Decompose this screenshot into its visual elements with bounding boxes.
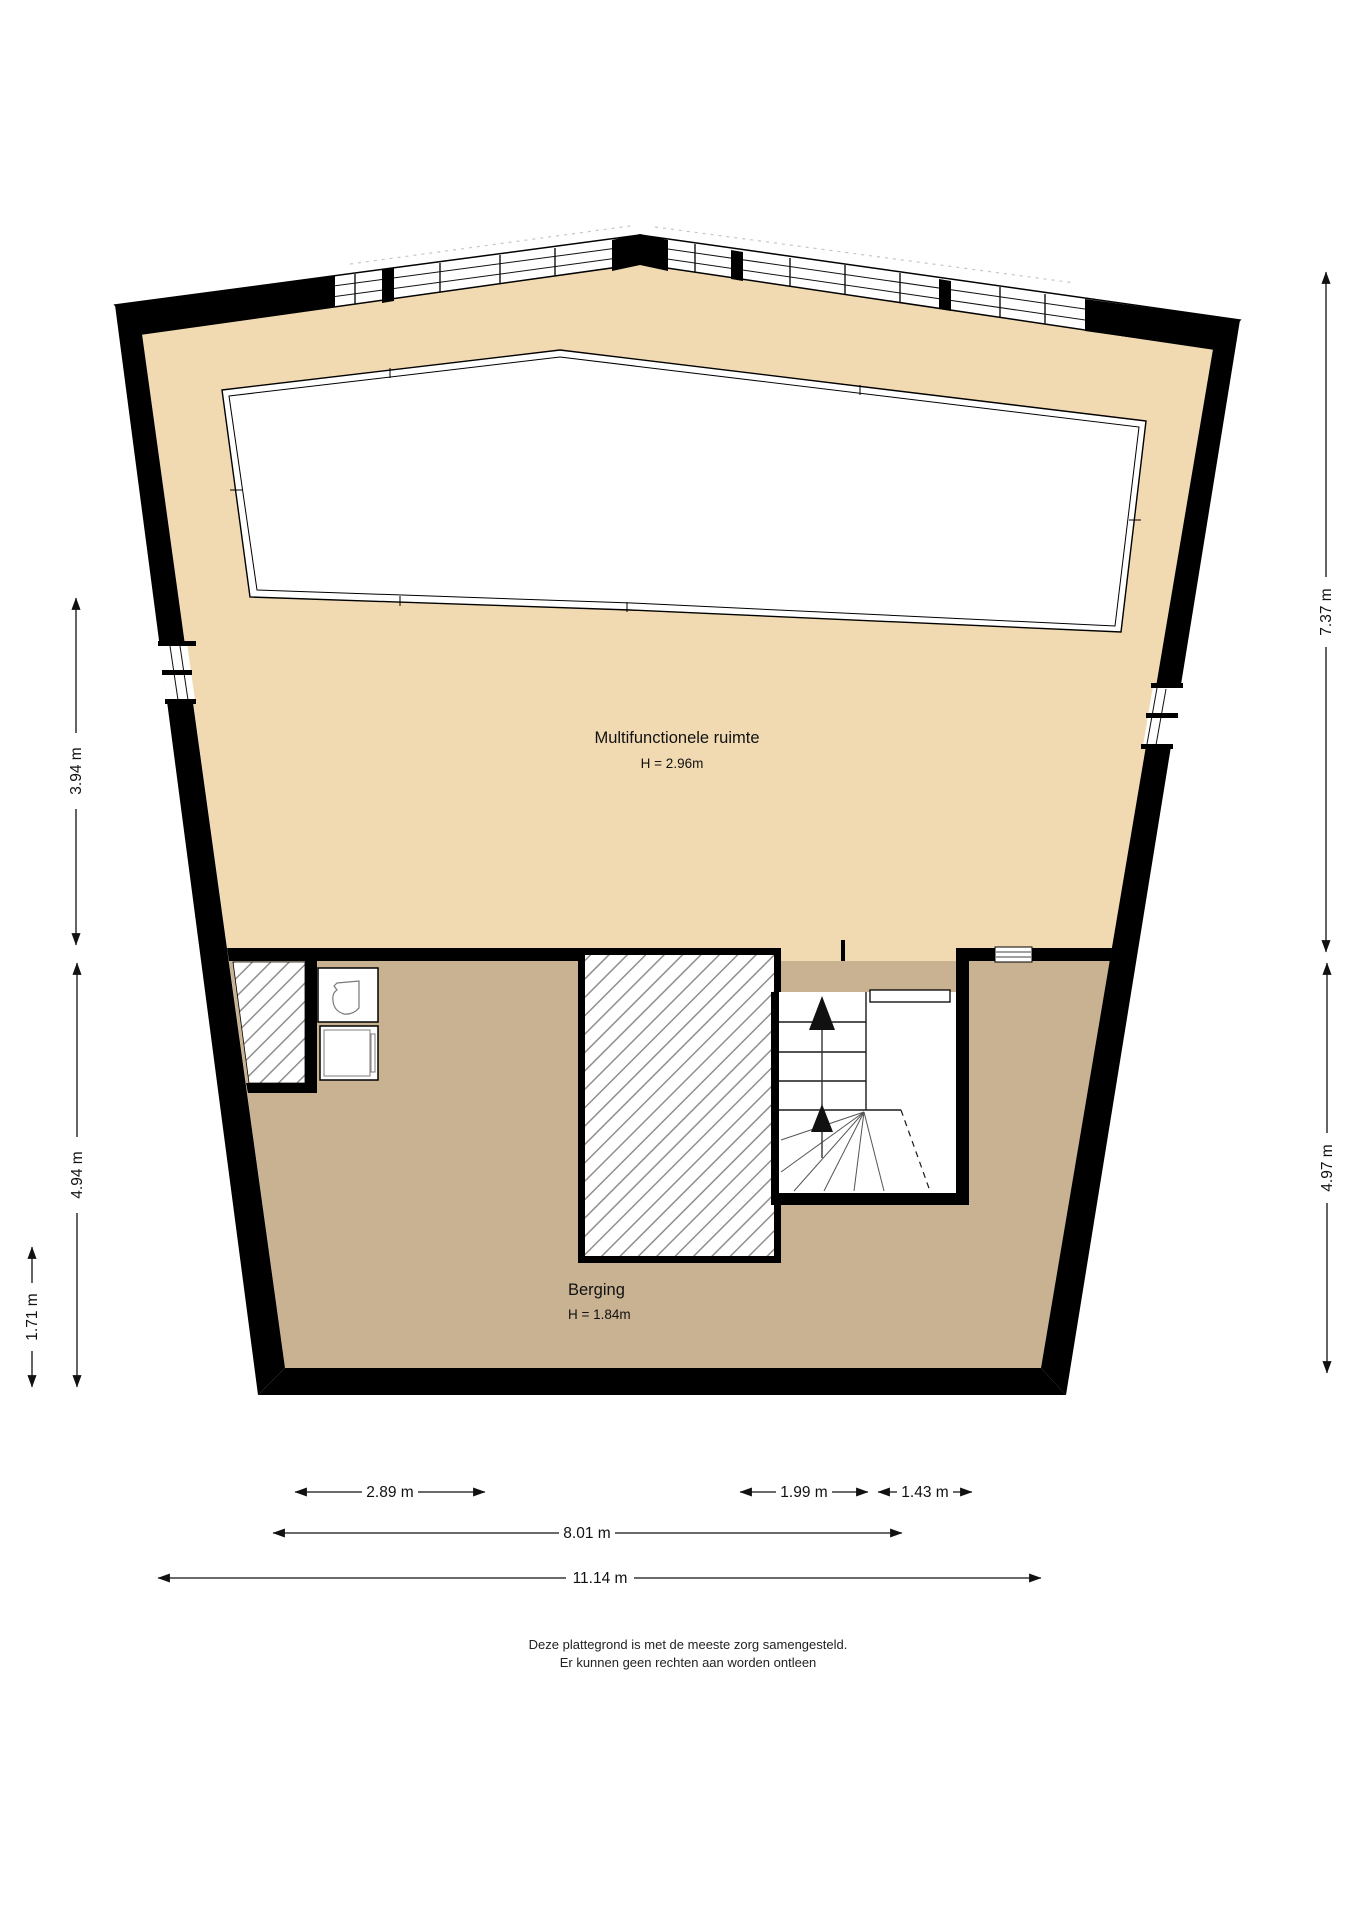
dimensions-right: 7.37 m 4.97 m — [1318, 272, 1336, 1373]
stair-bottom-wall — [771, 1193, 969, 1205]
room-height-berging: H = 1.84m — [568, 1307, 631, 1322]
dim-label: 3.94 m — [68, 747, 85, 794]
dim-label: 1.43 m — [901, 1484, 948, 1501]
footer-disclaimer: Deze plattegrond is met de meeste zorg s… — [529, 1637, 848, 1670]
footer-line-1: Deze plattegrond is met de meeste zorg s… — [529, 1637, 848, 1652]
dividing-wall-right — [956, 948, 1112, 961]
room-height-multifunctionele: H = 2.96m — [641, 756, 704, 771]
dim-label: 1.99 m — [780, 1484, 827, 1501]
floor-plan: Multifunctionele ruimte H = 2.96m Bergin… — [0, 0, 1358, 1920]
niche-bottom-wall — [246, 1083, 317, 1093]
dimensions-left: 3.94 m 4.94 m 1.71 m — [24, 598, 86, 1387]
stair-left-wall — [771, 992, 779, 1196]
dimension-bottom-2: 1.99 m — [740, 1484, 868, 1501]
dim-label: 1.71 m — [24, 1293, 41, 1340]
dimension-bottom-4: 8.01 m — [273, 1525, 902, 1542]
dim-label: 7.37 m — [1318, 588, 1335, 635]
top-mullion-pier-2 — [731, 250, 743, 281]
dividing-wall-left — [227, 948, 578, 961]
hatched-area-fill — [585, 955, 774, 1256]
niche-right-wall — [305, 955, 317, 1093]
dimensions-bottom: 2.89 m 1.99 m 1.43 m 8.01 m 11.14 m — [158, 1484, 1041, 1587]
room-label-berging: Berging — [568, 1281, 625, 1299]
dim-label: 8.01 m — [563, 1525, 610, 1542]
dim-label: 4.94 m — [69, 1151, 86, 1198]
dimension-right-2: 4.97 m — [1319, 963, 1336, 1373]
footer-line-2: Er kunnen geen rechten aan worden ontlee… — [560, 1655, 817, 1670]
dimension-right-1: 7.37 m — [1318, 272, 1335, 952]
toilet-icon — [318, 968, 378, 1022]
stair-right-wall — [956, 948, 969, 1205]
dimension-bottom-3: 1.43 m — [878, 1484, 972, 1501]
dim-label: 4.97 m — [1319, 1144, 1336, 1191]
dim-label: 2.89 m — [366, 1484, 413, 1501]
room-label-multifunctionele: Multifunctionele ruimte — [594, 729, 759, 747]
low-height-hatched-area — [578, 948, 781, 1263]
washing-machine-icon — [320, 1026, 378, 1080]
interior-wall-window — [995, 947, 1032, 962]
bottom-wall — [258, 1368, 1066, 1395]
dim-label: 11.14 m — [573, 1570, 628, 1587]
stair-door-panel — [870, 990, 950, 1002]
top-mullion-pier-3 — [939, 279, 951, 311]
dimension-bottom-1: 2.89 m — [295, 1484, 485, 1501]
dimension-left-3: 1.71 m — [24, 1247, 41, 1387]
dimension-bottom-5: 11.14 m — [158, 1570, 1041, 1587]
dimension-left-2: 4.94 m — [69, 963, 86, 1387]
door-frame-tick — [841, 940, 845, 961]
floor-plan-page: Multifunctionele ruimte H = 2.96m Bergin… — [0, 0, 1358, 1920]
dimension-left-1: 3.94 m — [68, 598, 85, 945]
top-mullion-pier-1 — [382, 268, 394, 303]
